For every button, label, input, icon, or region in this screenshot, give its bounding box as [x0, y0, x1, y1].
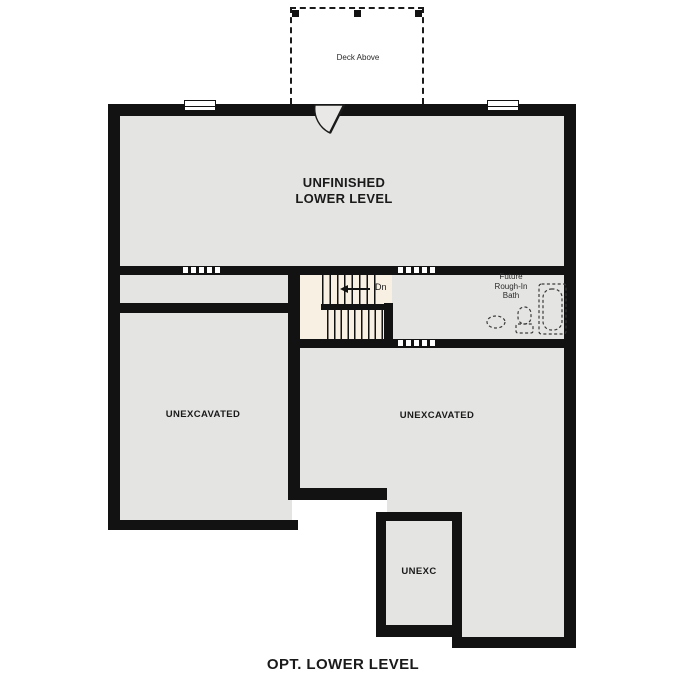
- wall-bottom-right: [452, 637, 576, 648]
- deck-label: Deck Above: [337, 53, 380, 63]
- deck-post-icon: [415, 10, 422, 17]
- right-room-floor-mid: [387, 488, 570, 514]
- right-unexcavated-label: UNEXCAVATED: [400, 410, 475, 421]
- wall-small-room-left: [376, 512, 386, 637]
- deck-post-icon: [292, 10, 299, 17]
- right-room-floor-lower: [458, 512, 570, 640]
- wall-left-exterior: [108, 104, 120, 530]
- stair-treads-lower: [327, 310, 389, 339]
- wall-opening: [398, 267, 438, 273]
- window-pane-line: [185, 106, 215, 107]
- small-unexcavated-label: UNEXC: [401, 566, 436, 577]
- page-title: OPT. LOWER LEVEL: [267, 656, 419, 673]
- left-unexcavated-label: UNEXCAVATED: [166, 409, 241, 420]
- toilet-bowl-icon: [518, 307, 531, 324]
- window-icon: [184, 100, 216, 111]
- wall-opening: [183, 267, 223, 273]
- tub-inner-icon: [543, 289, 562, 330]
- window-icon: [487, 100, 519, 111]
- tub-outer-icon: [539, 284, 566, 334]
- stair-arrow-shaft: [348, 288, 370, 290]
- bath-label: Future Rough-In Bath: [495, 272, 528, 301]
- door-swing-icon: [313, 103, 349, 137]
- deck-post-icon: [354, 10, 361, 17]
- toilet-base-icon: [516, 324, 533, 333]
- wall-small-room-top: [376, 512, 462, 521]
- stairs-direction-label: Dn: [375, 282, 387, 292]
- wall-small-room-bottom: [376, 625, 456, 637]
- wall-step: [288, 488, 387, 500]
- wall-opening: [398, 340, 438, 346]
- window-pane-line: [488, 106, 518, 107]
- floor-plan: Dn Deck Above UNFINISHED LOWER LEVEL Fut…: [0, 0, 687, 687]
- stair-arrow-icon: [340, 285, 348, 293]
- wall-left-room-bottom: [108, 520, 298, 530]
- wall-mid-vertical: [288, 266, 300, 498]
- wall-corridor-bottom: [108, 303, 300, 313]
- main-room-label: UNFINISHED LOWER LEVEL: [295, 175, 392, 207]
- wall-right-exterior: [564, 104, 576, 648]
- sink-icon: [487, 316, 505, 328]
